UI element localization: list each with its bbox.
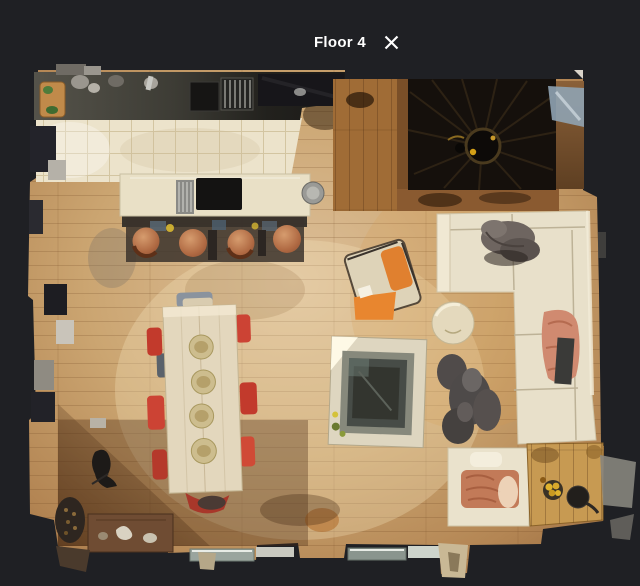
wood-mat: [527, 443, 603, 526]
fire-table: [328, 336, 427, 447]
sink: [190, 82, 219, 111]
kitchen-tile-floor: [30, 118, 302, 182]
cooktop: [196, 178, 242, 210]
bench-daybed: [448, 448, 529, 526]
floor-label: Floor 4: [314, 34, 366, 51]
close-button[interactable]: [382, 33, 400, 51]
bar-stools: [126, 217, 304, 262]
round-hat: [567, 486, 589, 508]
close-icon: [384, 35, 399, 50]
bar-stool: [273, 225, 301, 253]
dish-rack: [221, 78, 253, 110]
bar-stool: [179, 229, 207, 257]
dining-table: [163, 305, 242, 493]
basket: [55, 497, 85, 543]
kitchen-counter: [34, 72, 345, 120]
stair-center-ring: [466, 129, 500, 163]
spiral-staircase: [397, 70, 584, 190]
floorplan-viewer: Floor 4: [0, 0, 640, 586]
salmon-blanket: [542, 310, 580, 385]
pouf: [432, 302, 474, 344]
storage-chest: [88, 514, 173, 552]
right-wall-fragments: [598, 232, 636, 540]
floorplan-view[interactable]: [0, 0, 640, 586]
floor-selector-chip: Floor 4: [37, 33, 640, 51]
